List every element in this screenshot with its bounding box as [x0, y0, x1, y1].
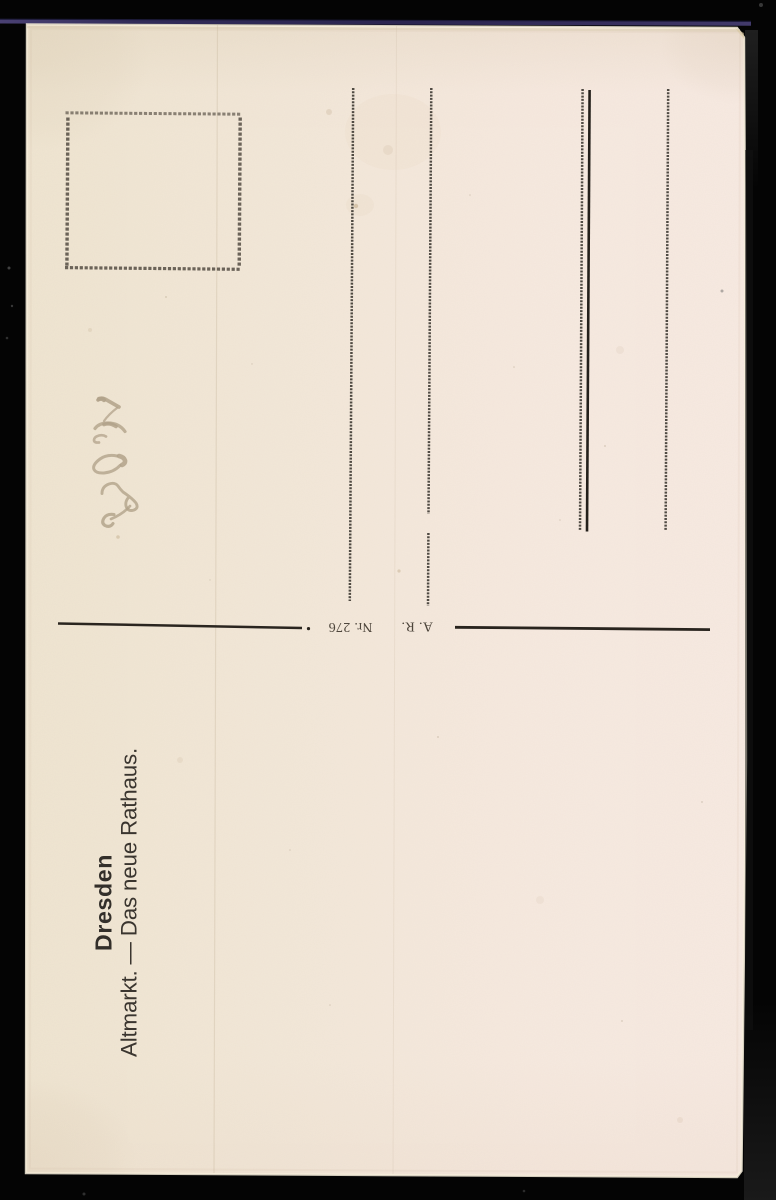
svg-text:Altmarkt. — Das neue Rathaus.: Altmarkt. — Das neue Rathaus.	[117, 748, 142, 1057]
svg-text:Dresden: Dresden	[91, 854, 117, 951]
svg-text:Nr. 276: Nr. 276	[328, 619, 372, 634]
svg-text:A. R.: A. R.	[401, 618, 433, 633]
